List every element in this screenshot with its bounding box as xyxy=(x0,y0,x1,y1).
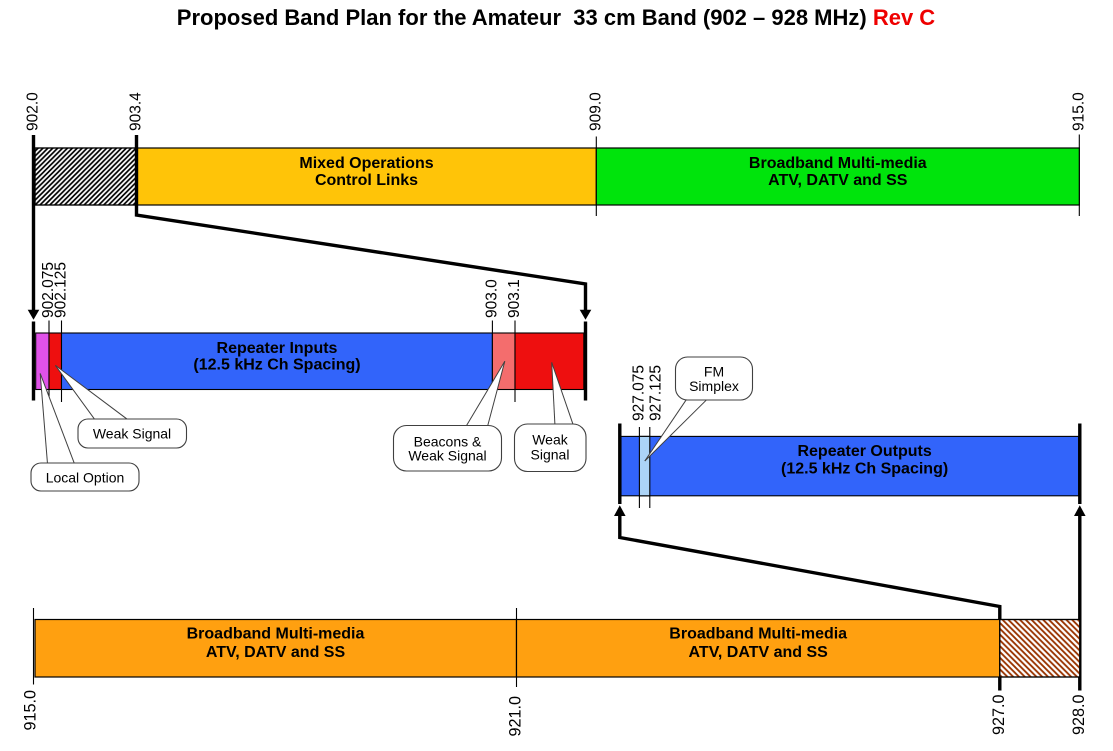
svg-text:(12.5 kHz Ch Spacing): (12.5 kHz Ch Spacing) xyxy=(781,461,948,478)
svg-text:902.0: 902.0 xyxy=(25,92,42,131)
svg-text:Signal: Signal xyxy=(531,447,570,463)
svg-text:927.075: 927.075 xyxy=(630,365,647,421)
svg-text:903.0: 903.0 xyxy=(483,279,500,318)
svg-text:927.125: 927.125 xyxy=(647,365,664,421)
svg-text:Weak: Weak xyxy=(532,432,569,448)
svg-text:Repeater Outputs: Repeater Outputs xyxy=(797,443,931,460)
svg-text:Simplex: Simplex xyxy=(689,378,739,394)
svg-text:Local Option: Local Option xyxy=(46,469,125,485)
svg-text:903.4: 903.4 xyxy=(128,92,145,131)
svg-text:(12.5 kHz Ch Spacing): (12.5 kHz Ch Spacing) xyxy=(193,357,360,374)
svg-text:928.0: 928.0 xyxy=(1070,694,1088,735)
svg-text:903.1: 903.1 xyxy=(506,279,523,318)
svg-text:915.0: 915.0 xyxy=(1070,92,1087,131)
svg-text:Weak Signal: Weak Signal xyxy=(408,448,486,464)
svg-text:921.0: 921.0 xyxy=(507,696,525,737)
svg-text:915.0: 915.0 xyxy=(22,690,40,731)
svg-text:Weak Signal: Weak Signal xyxy=(93,426,171,442)
svg-text:ATV, DATV and SS: ATV, DATV and SS xyxy=(206,644,346,661)
svg-text:927.0: 927.0 xyxy=(990,694,1008,735)
svg-text:909.0: 909.0 xyxy=(587,92,604,131)
svg-text:Broadband Multi-media: Broadband Multi-media xyxy=(749,155,927,172)
svg-text:Mixed Operations: Mixed Operations xyxy=(299,155,433,172)
svg-text:Broadband Multi-media: Broadband Multi-media xyxy=(187,625,365,642)
svg-text:Broadband Multi-media: Broadband Multi-media xyxy=(669,625,847,642)
svg-text:Repeater Inputs: Repeater Inputs xyxy=(217,340,338,357)
svg-text:902.125: 902.125 xyxy=(53,262,70,318)
svg-text:Proposed Band Plan for the Ama: Proposed Band Plan for the Amateur 33 cm… xyxy=(177,5,936,30)
svg-text:ATV, DATV and SS: ATV, DATV and SS xyxy=(689,644,829,661)
svg-text:Control Links: Control Links xyxy=(315,172,418,189)
svg-text:ATV, DATV and SS: ATV, DATV and SS xyxy=(768,172,908,189)
